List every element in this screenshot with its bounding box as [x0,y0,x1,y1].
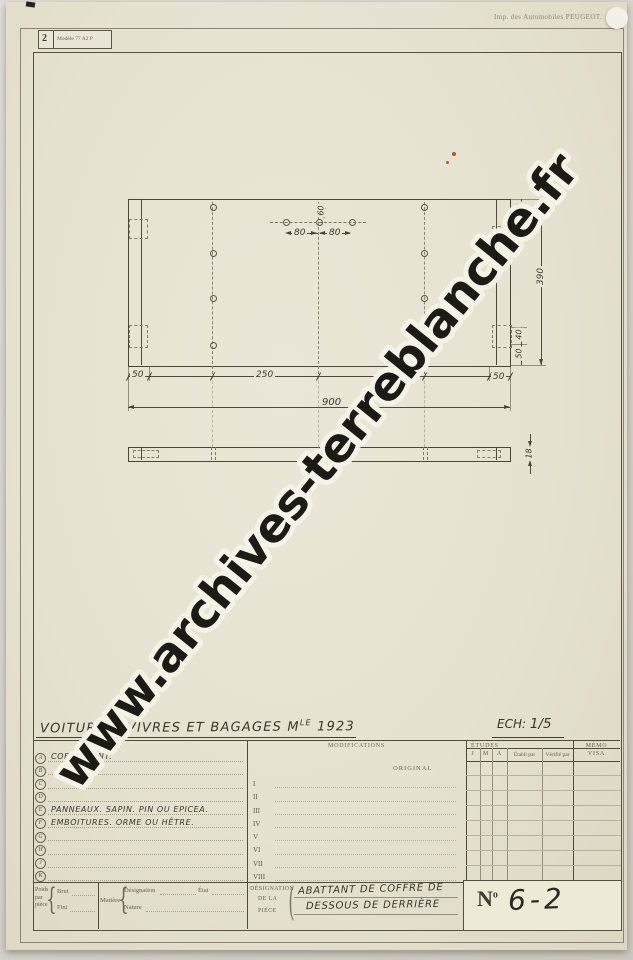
glare-spot [606,7,628,29]
matiere-label: Matière [100,897,120,904]
hole-marker [210,250,217,257]
leader-dots [48,840,243,841]
scale-note: ECH: 1/5 [497,716,552,732]
piece-name-line-2: DESSOUS DE DERRIÈRE [306,899,440,912]
legend-letter: K [35,871,46,882]
legend-row: C [33,777,247,790]
extension-line [511,365,546,366]
modification-row: IV [251,818,462,831]
legend-letter: H [35,845,46,856]
scanned-drawing-sheet: 2 Modèle 77 A2 P Imp. des Automobiles PE… [0,0,633,960]
arrowhead [504,405,510,409]
modification-numeral: VII [253,860,263,868]
visa-label: VISA [573,751,620,757]
paren-glyph: ( [288,883,294,921]
nature-label: Nature [124,904,142,911]
leader-dots [275,840,456,841]
stamp-number: 2 [42,33,47,44]
legend-letter: G [35,832,46,843]
table-column-line [98,882,99,929]
arrowhead [345,231,351,235]
ruled-line [294,914,458,915]
leader-dots [275,880,456,881]
leader-dots [72,895,95,896]
piece-label-2: DE LA [258,896,277,902]
modification-numeral: II [253,793,258,801]
leader-dots [48,880,243,881]
mortise-hidden-outline [129,325,148,348]
hole-marker [210,342,217,349]
title-year: 1923 [317,719,355,734]
stamp-model: Modèle 77 A2 P [57,36,93,42]
legend-text: PANNEAUX. SAPIN. PIN OU EPICEA. [51,805,209,814]
joint-mark [427,447,428,460]
mortise-hidden-outline [492,226,512,249]
arrowhead [539,199,543,205]
dim-thickness: 18 [525,446,534,460]
dim-right-top-2: 40 [515,220,524,234]
modification-row: VI [251,844,462,857]
etudes-col-a: A [492,751,507,757]
mortise-hidden-outline [129,219,148,239]
hole-marker [210,204,217,211]
modification-row: VII [251,858,462,871]
table-column-line [247,740,248,929]
hole-marker [421,295,428,302]
rust-speck [446,161,449,164]
arrowhead [319,231,325,235]
etudes-col-j: J [466,751,480,757]
joint-mark [322,447,323,460]
leader-dots [275,814,456,815]
title-underline [36,737,356,738]
leader-dots [48,761,243,762]
legend-row: D [33,791,247,804]
legend-letter: A [35,753,46,764]
mortise-hidden-outline [492,325,512,348]
hole-axis-line [270,222,366,223]
leader-dots [275,787,456,788]
joint-mark [318,447,319,460]
modification-numeral: III [253,807,260,815]
modification-numeral: V [253,833,258,841]
legend-row: J [33,857,247,870]
piece-label-3: PIÈCE [258,908,277,914]
joint-mark [215,447,216,460]
brace-glyph: { [46,885,57,915]
stamp-divider [53,31,54,48]
dim-bottom-3: 250 [396,371,417,380]
centerline [424,376,425,447]
legend-row: H [33,843,247,856]
leader-dots [160,894,196,895]
dimension-line [530,466,531,474]
scale-label: ECH: [497,717,526,731]
title-model-sup: LE [300,718,312,727]
dim-bottom-2: 250 [254,371,275,380]
title-main: VOITURE A VIVRES ET BAGAGES M [40,720,300,737]
legend-text: COEFFICIENT: [51,752,113,761]
edge-view-outline [128,447,511,462]
legend-letter: F [35,818,46,829]
etudes-col-verifie: Vérifié par [542,752,573,758]
leader-dots [48,801,243,802]
table-top-border [33,740,620,741]
tenon-hidden-outline [477,450,501,458]
sheet-title: VOITURE A VIVRES ET BAGAGES MLE 1923 [40,718,355,737]
leader-dots [48,854,243,855]
modification-row: III [251,805,462,818]
legend-letter: J [35,858,46,869]
legend-text: EMBOITURES. ORME OU HÊTRE. [51,818,194,827]
modification-row: I [251,778,462,791]
arrowhead [528,460,532,466]
number-n: N [477,886,493,911]
legend-row: FEMBOITURES. ORME OU HÊTRE. [33,817,247,830]
hole-marker [349,219,356,226]
leader-dots [48,774,243,775]
fini-label: Fini [57,904,67,911]
original-label: ORIGINAL [393,765,432,772]
joint-mark [211,447,212,460]
dim-bottom-1: 50 [130,371,145,380]
dimension-line [128,407,510,408]
scale-value: 1/5 [530,716,552,732]
centerline [318,202,319,374]
leader-dots [48,827,243,828]
arrowhead [539,359,543,365]
designation-label: Désignation [124,887,155,894]
dim-right-bottom-1: 40 [515,327,524,341]
leader-dots [275,854,456,855]
scale-underline [492,737,564,738]
leader-dots [275,867,456,868]
dim-width-total: 900 [320,398,343,407]
drawing-number-value: 6-2 [507,882,566,917]
modification-numeral: IV [253,820,260,828]
hole-marker [421,342,428,349]
modification-row: II [251,791,462,804]
modification-numeral: VI [253,846,260,854]
extension-line [511,237,527,238]
etudes-col-m: M [480,751,492,757]
tenon-hidden-outline [133,450,159,458]
hole-marker [283,219,290,226]
centerline [212,376,213,447]
etudes-row-grid [466,761,621,882]
legend-row: G [33,830,247,843]
brut-label: Brut [57,888,69,895]
printer-imprint: Imp. des Automobiles PEUGEOT. [494,13,602,21]
dim-height-total: 390 [537,266,546,287]
legend-row: EPANNEAUX. SAPIN. PIN OU EPICEA. [33,804,247,817]
table-line [466,748,620,749]
extension-line [510,381,511,411]
dim-hole-spacing: 80 [327,229,342,238]
dim-hole-spacing: 80 [292,229,307,238]
leader-dots [212,894,244,895]
etudes-col-etabli: Établi par [507,752,542,758]
stamp-box: 2 Modèle 77 A2 P [38,30,112,49]
modification-numeral: I [253,780,255,788]
leader-dots [146,911,244,912]
etat-label: État [198,887,208,894]
drawing-number-box: No 6-2 [463,880,622,931]
legend-letter: D [35,792,46,803]
leader-dots [70,911,95,912]
legend-row: B [33,764,247,777]
legend-row: K [33,870,247,883]
leader-dots [275,827,456,828]
arrowhead [311,231,317,235]
extension-line [511,344,527,345]
ink-speck [26,1,36,7]
modification-numeral: VIII [253,873,265,881]
rust-speck [452,152,456,156]
leader-dots [48,788,243,789]
legend-row: ACOEFFICIENT: [33,751,247,764]
dim-top-edge: 60 [317,203,326,217]
leader-dots [275,801,456,802]
legend-letter: C [35,779,46,790]
dim-bottom-4: 50 [491,373,506,382]
leader-dots [48,867,243,868]
modifications-list: I II III IV V VI VII VIII [251,778,462,884]
legend-letter: E [35,805,46,816]
dim-right-top-1: 50 [515,201,524,215]
hole-marker [316,219,323,226]
modification-row: V [251,831,462,844]
hole-marker [421,250,428,257]
legend-letter: B [35,766,46,777]
number-degree: o [493,890,498,901]
legend-list: ACOEFFICIENT: B C D EPANNEAUX. SAPIN. PI… [33,751,247,883]
arrowhead [285,231,291,235]
ruled-line [294,897,458,898]
dim-right-bottom-2: 50 [515,346,524,360]
legend-header: LÉGENDE [60,743,150,749]
joint-mark [423,447,424,460]
arrowhead [128,405,134,409]
centerline [318,376,319,447]
hole-marker [210,295,217,302]
modifications-header: MODIFICATIONS [247,743,466,749]
hole-marker [421,204,428,211]
number-prefix: No [477,886,498,912]
leader-dots [48,814,243,815]
